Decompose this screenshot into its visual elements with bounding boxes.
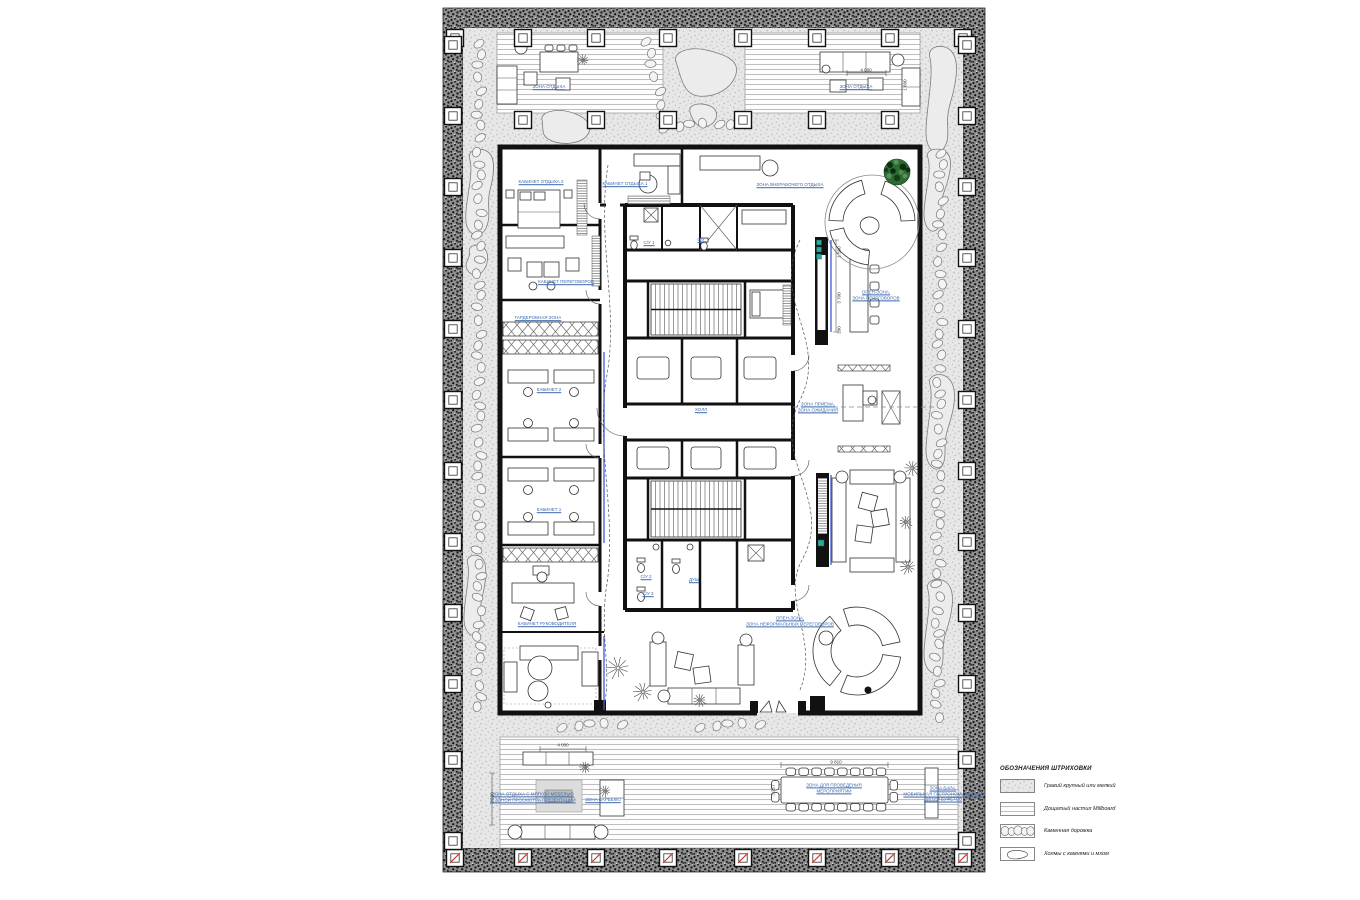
column-marker [809, 850, 826, 867]
column-marker [959, 605, 976, 622]
column-marker [735, 850, 752, 867]
column-marker [735, 30, 752, 47]
tree-icon [884, 159, 911, 185]
column-marker [515, 850, 532, 867]
lower-bar-counter [816, 473, 829, 567]
legend-item-millboard: Дощатый настил Millboard [1000, 802, 1170, 816]
column-marker [959, 179, 976, 196]
conference-table [781, 777, 888, 803]
column-marker [588, 30, 605, 47]
legend-item-stone-path: Каменная дорожка [1000, 824, 1170, 838]
column-marker [959, 833, 976, 850]
column-marker [445, 676, 462, 693]
column-marker [445, 833, 462, 850]
millboard-swatch-icon [1000, 802, 1035, 816]
column-marker [959, 37, 976, 54]
column-marker [588, 112, 605, 129]
terrace-bar [925, 768, 938, 818]
column-marker [588, 850, 605, 867]
column-marker [959, 534, 976, 551]
column-marker [882, 30, 899, 47]
column-marker [445, 108, 462, 125]
column-marker [445, 463, 462, 480]
legend-item-hills: Холмы с камнями и мхом [1000, 847, 1170, 861]
column-marker [959, 676, 976, 693]
column-marker [660, 850, 677, 867]
column-marker [882, 850, 899, 867]
column-marker [445, 534, 462, 551]
stone-path-swatch-icon [1000, 824, 1035, 838]
column-marker [959, 250, 976, 267]
column-marker [955, 850, 972, 867]
column-marker [660, 112, 677, 129]
legend-item-gravel: Гравий крупный или мелкий [1000, 779, 1170, 793]
column-marker [735, 112, 752, 129]
column-marker [809, 30, 826, 47]
column-marker [515, 112, 532, 129]
column-marker [445, 250, 462, 267]
column-marker [445, 179, 462, 196]
legend-item-label: Каменная дорожка [1044, 828, 1092, 834]
column-marker [809, 112, 826, 129]
legend-item-label: Гравий крупный или мелкий [1044, 783, 1116, 789]
legend-item-label: Дощатый настил Millboard [1044, 806, 1115, 812]
column-marker [959, 752, 976, 769]
column-marker [959, 392, 976, 409]
hills-swatch-icon [1000, 847, 1035, 861]
column-marker [959, 108, 976, 125]
gravel-swatch-icon [1000, 779, 1035, 793]
column-marker [959, 463, 976, 480]
column-marker [959, 321, 976, 338]
column-marker [445, 752, 462, 769]
floor-plan-sheet: ЗОНА ОТДЫХАЗОНА ОТДЫХАКАБИНЕТ ОТДЫХА 2КА… [0, 0, 1360, 900]
column-marker [882, 112, 899, 129]
legend-item-label: Холмы с камнями и мхом [1044, 851, 1109, 857]
column-marker [445, 321, 462, 338]
hatch-legend: ОБОЗНАЧЕНИЯ ШТРИХОВКИ Гравий крупный или… [1000, 766, 1170, 869]
column-marker [445, 392, 462, 409]
legend-title: ОБОЗНАЧЕНИЯ ШТРИХОВКИ [1000, 766, 1170, 772]
floor-plan-drawing [0, 0, 1360, 900]
column-marker [445, 37, 462, 54]
column-marker [515, 30, 532, 47]
column-marker [447, 850, 464, 867]
column-marker [445, 605, 462, 622]
column-marker [660, 30, 677, 47]
